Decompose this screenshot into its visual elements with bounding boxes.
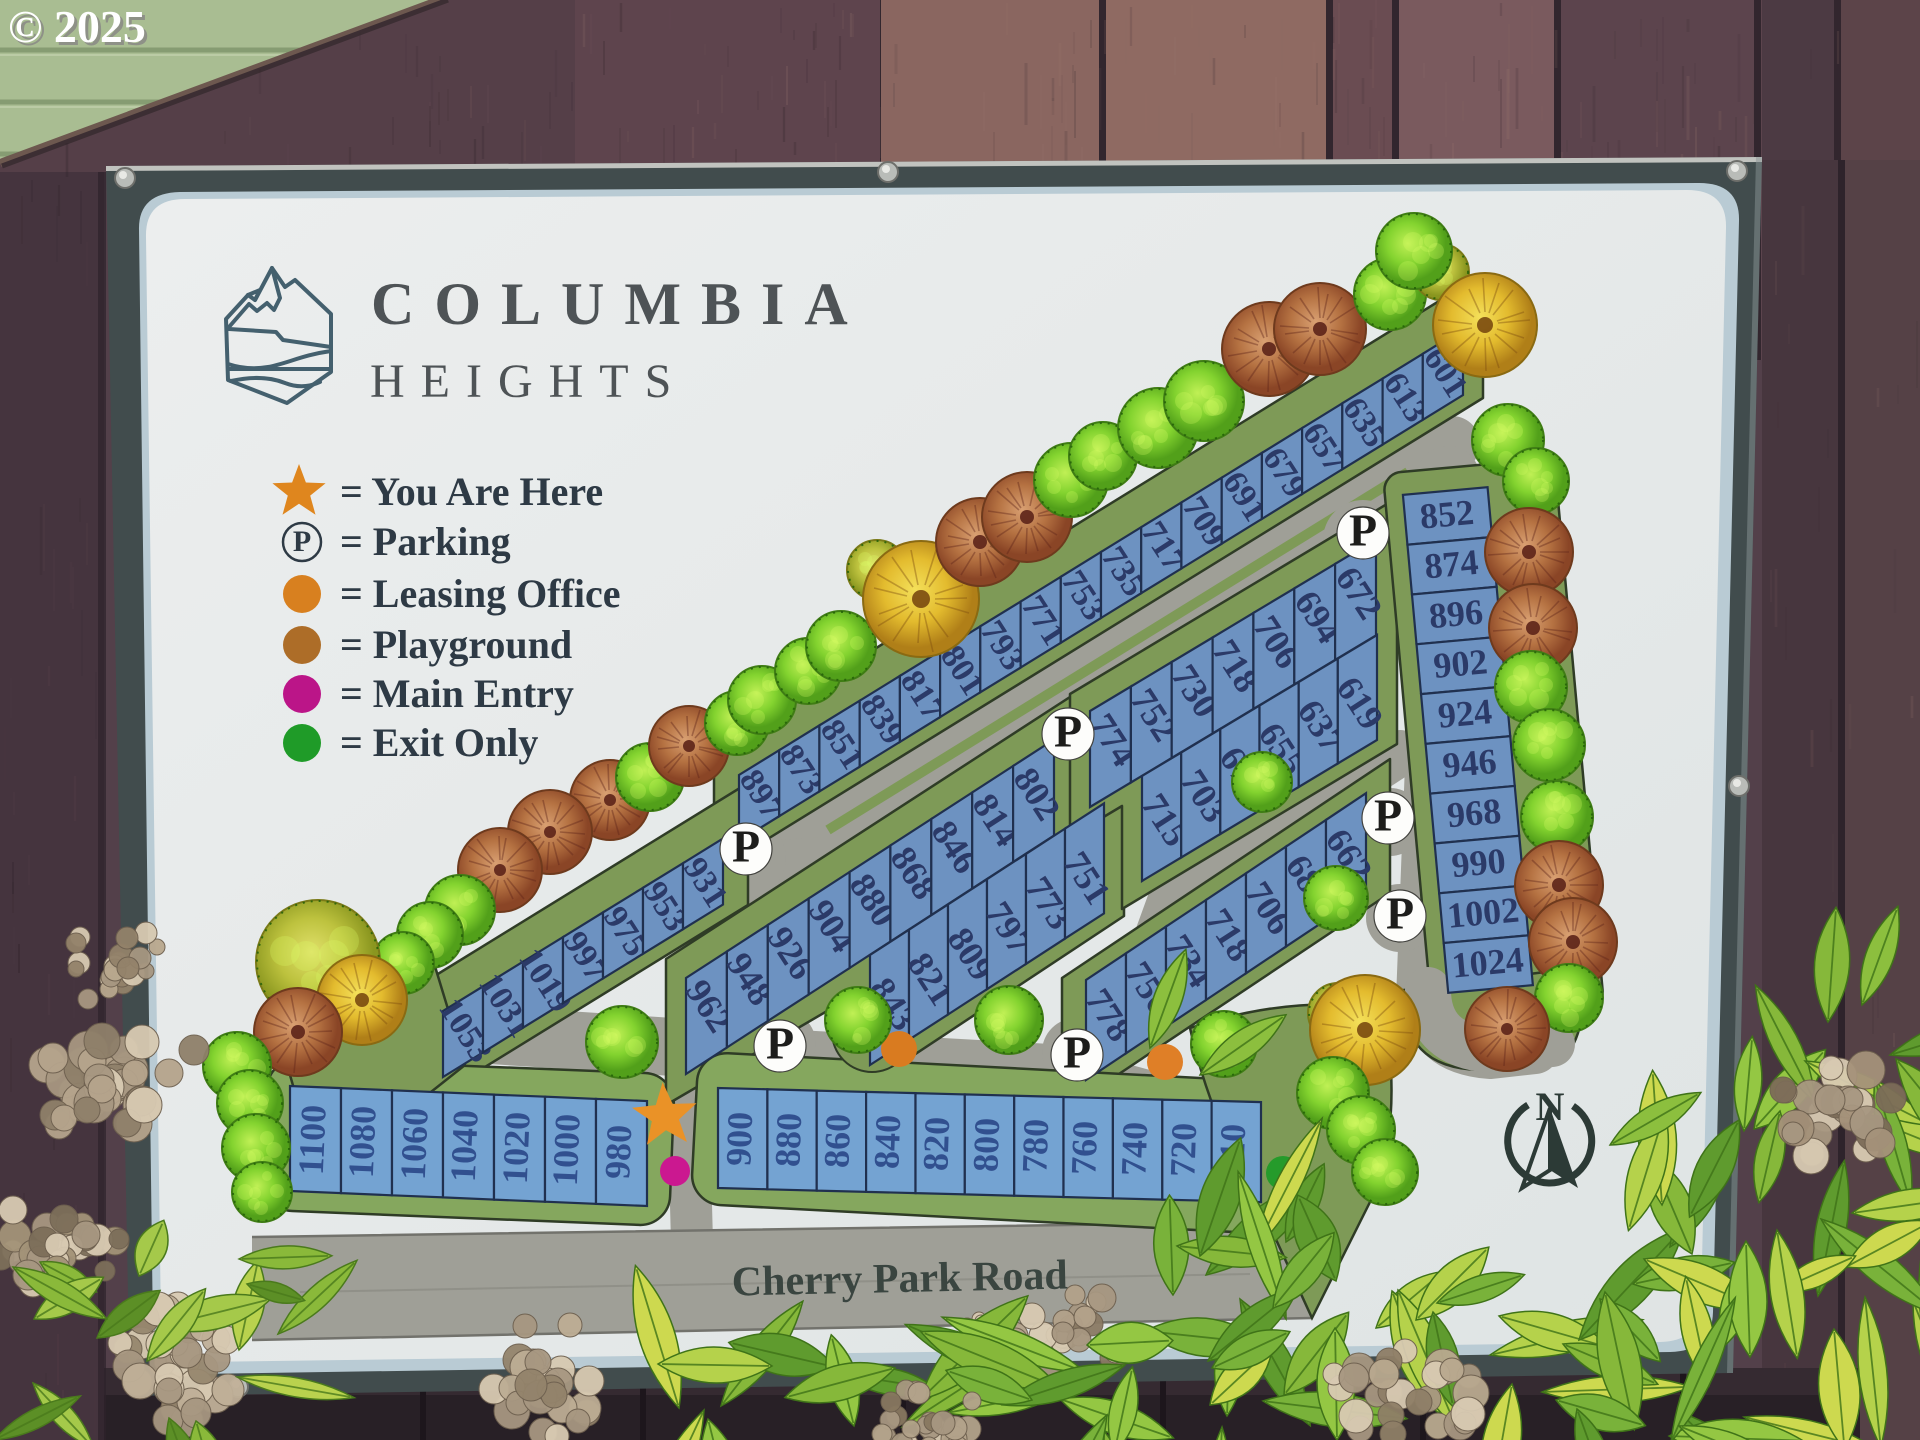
- svg-text:990: 990: [1450, 840, 1507, 885]
- svg-text:1060: 1060: [393, 1107, 436, 1181]
- svg-text:Cherry Park Road: Cherry Park Road: [731, 1252, 1068, 1305]
- svg-text:P: P: [766, 1018, 794, 1069]
- svg-text:P: P: [1054, 706, 1082, 757]
- svg-text:968: 968: [1445, 791, 1502, 836]
- svg-text:P: P: [1349, 505, 1377, 556]
- svg-text:HEIGHTS: HEIGHTS: [370, 355, 687, 408]
- svg-text:852: 852: [1418, 492, 1475, 537]
- svg-text:P: P: [1063, 1027, 1091, 1078]
- svg-text:874: 874: [1423, 542, 1480, 587]
- svg-text:= Leasing Office: = Leasing Office: [340, 571, 621, 616]
- svg-text:P: P: [293, 525, 311, 558]
- svg-text:1000: 1000: [545, 1113, 588, 1187]
- svg-text:1002: 1002: [1445, 889, 1520, 935]
- svg-text:1040: 1040: [443, 1109, 486, 1183]
- svg-text:P: P: [1374, 790, 1402, 841]
- svg-text:760: 760: [1063, 1120, 1105, 1175]
- svg-text:1080: 1080: [341, 1105, 384, 1179]
- svg-text:896: 896: [1427, 591, 1484, 636]
- svg-text:946: 946: [1441, 741, 1498, 786]
- svg-text:= Main Entry: = Main Entry: [340, 671, 574, 716]
- svg-text:800: 800: [965, 1117, 1007, 1172]
- svg-text:1024: 1024: [1450, 939, 1525, 985]
- svg-text:860: 860: [816, 1113, 858, 1168]
- svg-text:P: P: [732, 821, 760, 872]
- svg-text:= You Are Here: = You Are Here: [340, 469, 603, 514]
- svg-text:740: 740: [1113, 1121, 1155, 1176]
- svg-text:1020: 1020: [495, 1111, 538, 1185]
- svg-text:P: P: [1386, 888, 1414, 939]
- svg-text:900: 900: [718, 1111, 760, 1166]
- svg-text:880: 880: [767, 1112, 809, 1167]
- svg-text:780: 780: [1014, 1118, 1056, 1173]
- svg-text:= Playground: = Playground: [340, 622, 572, 667]
- svg-text:= Parking: = Parking: [340, 519, 511, 564]
- svg-text:924: 924: [1436, 691, 1493, 736]
- svg-text:= Exit Only: = Exit Only: [340, 720, 538, 765]
- svg-text:980: 980: [597, 1124, 639, 1180]
- svg-text:© 2025: © 2025: [8, 1, 146, 52]
- svg-text:720: 720: [1162, 1122, 1204, 1177]
- svg-text:820: 820: [915, 1116, 957, 1171]
- svg-text:840: 840: [866, 1114, 908, 1169]
- svg-text:1100: 1100: [291, 1104, 334, 1176]
- svg-text:902: 902: [1432, 641, 1489, 686]
- svg-text:COLUMBIA: COLUMBIA: [371, 271, 868, 337]
